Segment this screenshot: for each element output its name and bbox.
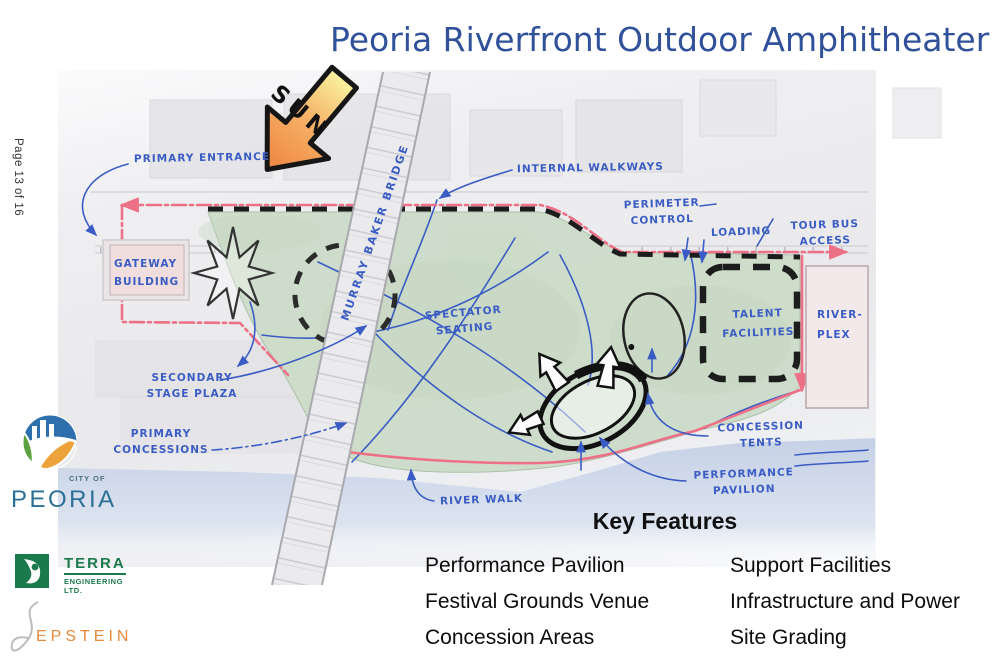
key-features-column-1: Performance Pavilion Festival Grounds Ve… [425, 548, 649, 656]
label-concession-tents: CONCESSION TENTS [710, 417, 811, 453]
terra-engineering-logo: TERRA ENGINEERING LTD. [14, 553, 134, 601]
label-perimeter-control: PERIMETER CONTROL [611, 194, 712, 230]
peoria-logo-cityof: CITY OF [69, 474, 105, 483]
label-internal-walkways: INTERNAL WALKWAYS [517, 159, 664, 178]
terra-logo-name: TERRA [64, 555, 126, 575]
label-performance-pavilion: PERFORMANCE PAVILION [684, 464, 803, 501]
key-feature-item: Support Facilities [730, 548, 960, 584]
terra-logo-subtitle: ENGINEERING LTD. [64, 577, 134, 595]
epstein-logo-name: EPSTEIN [36, 628, 132, 646]
slide: Page 13 of 16 Peoria Riverfront Outdoor … [0, 0, 1000, 667]
label-secondary-stage-plaza: SECONDARY STAGE PLAZA [144, 370, 240, 403]
label-primary-entrance: PRIMARY ENTRANCE [134, 149, 270, 168]
key-feature-item: Infrastructure and Power [730, 584, 960, 620]
key-feature-item: Site Grading [730, 620, 960, 656]
peoria-logo-name: PEORIA [11, 486, 117, 514]
key-feature-item: Festival Grounds Venue [425, 584, 649, 620]
page-title: Peoria Riverfront Outdoor Amphitheater [330, 20, 1000, 59]
epstein-logo: EPSTEIN [4, 598, 144, 660]
key-feature-item: Performance Pavilion [425, 548, 649, 584]
label-talent-facilities: TALENT FACILITIES [711, 303, 804, 344]
key-features-heading: Key Features [540, 508, 790, 535]
label-gateway-building: GATEWAY BUILDING [114, 255, 196, 292]
label-tour-bus-access: TOUR BUS ACCESS [778, 215, 871, 251]
key-feature-item: Concession Areas [425, 620, 649, 656]
city-of-peoria-logo: CITY OF PEORIA [6, 408, 118, 520]
page-indicator: Page 13 of 16 [12, 138, 24, 216]
terra-logo-mark [14, 553, 50, 589]
label-loading: LOADING [711, 223, 772, 241]
key-features-column-2: Support Facilities Infrastructure and Po… [730, 548, 960, 656]
label-river-plex: RIVER-PLEX [817, 306, 875, 346]
label-river-walk: RIVER WALK [440, 491, 524, 510]
